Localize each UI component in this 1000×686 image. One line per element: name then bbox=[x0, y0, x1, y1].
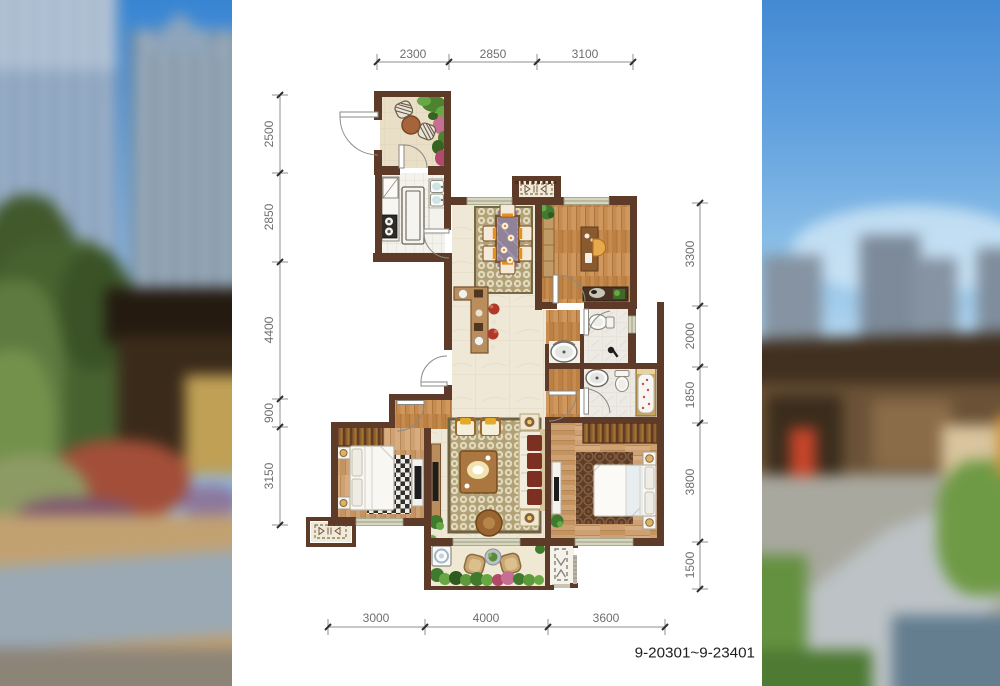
svg-text:3150: 3150 bbox=[262, 462, 276, 489]
svg-text:3600: 3600 bbox=[593, 611, 620, 625]
svg-text:1500: 1500 bbox=[683, 551, 697, 578]
svg-text:3100: 3100 bbox=[572, 47, 599, 61]
svg-text:2000: 2000 bbox=[683, 322, 697, 349]
svg-text:3800: 3800 bbox=[683, 468, 697, 495]
svg-text:2850: 2850 bbox=[262, 203, 276, 230]
svg-text:1850: 1850 bbox=[683, 381, 697, 408]
svg-text:9-20301~9-23401: 9-20301~9-23401 bbox=[635, 645, 755, 662]
svg-text:3300: 3300 bbox=[683, 240, 697, 267]
svg-text:2850: 2850 bbox=[480, 47, 507, 61]
svg-text:4400: 4400 bbox=[262, 316, 276, 343]
svg-text:4000: 4000 bbox=[473, 611, 500, 625]
svg-text:3000: 3000 bbox=[363, 611, 390, 625]
svg-text:2500: 2500 bbox=[262, 120, 276, 147]
svg-text:900: 900 bbox=[262, 403, 276, 423]
svg-text:2300: 2300 bbox=[400, 47, 427, 61]
